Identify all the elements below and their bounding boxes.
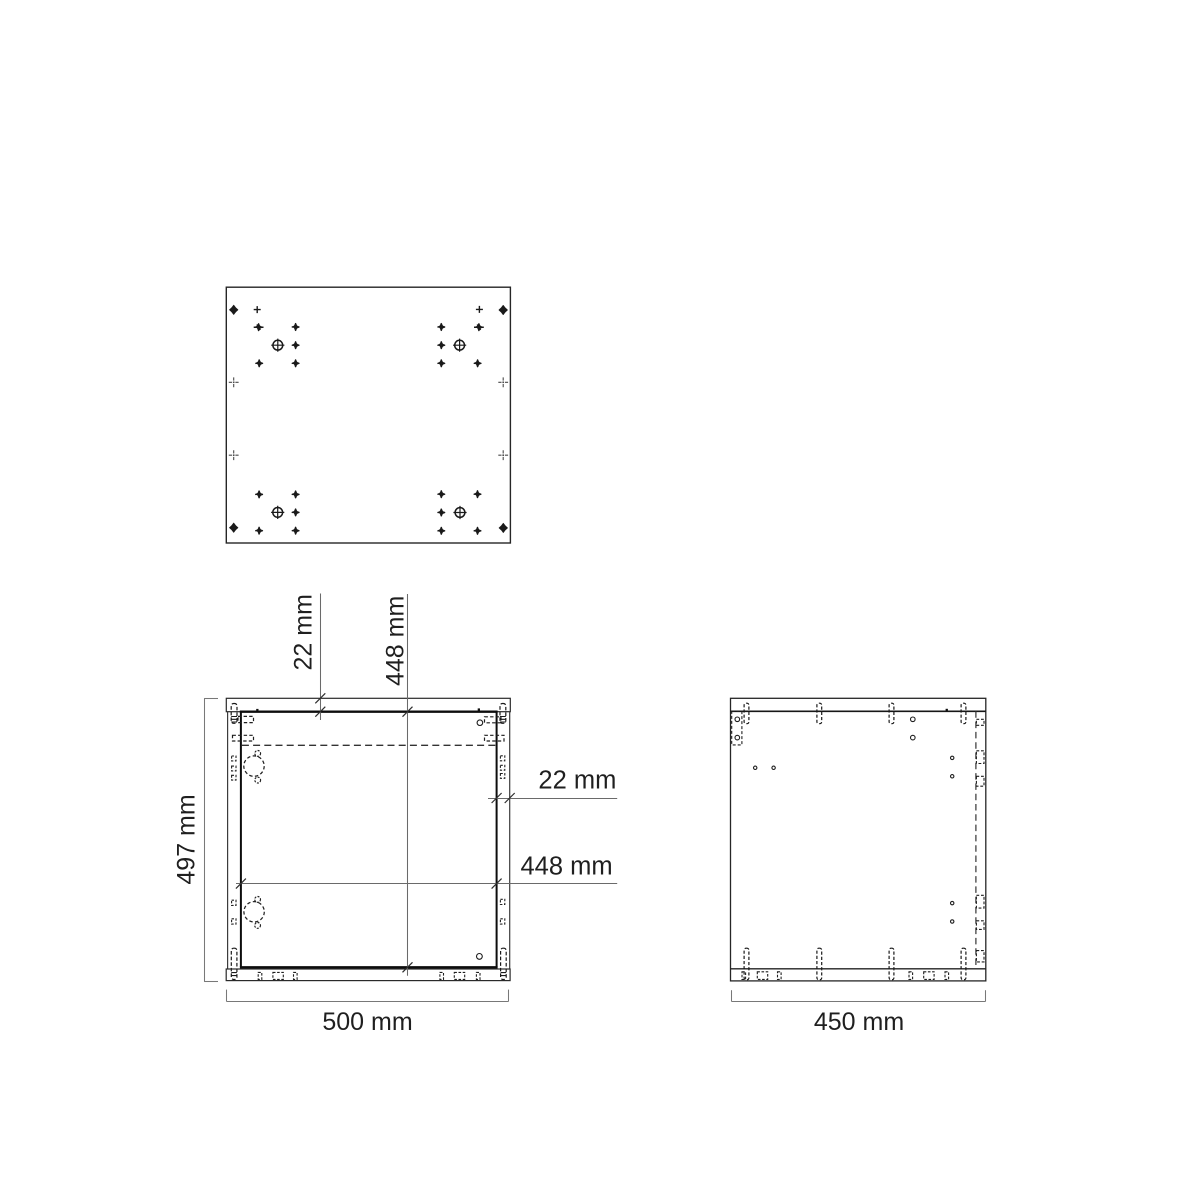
svg-text:22 mm: 22 mm xyxy=(290,594,318,670)
svg-text:450 mm: 450 mm xyxy=(814,1008,904,1036)
svg-text:497 mm: 497 mm xyxy=(173,794,201,884)
svg-text:500 mm: 500 mm xyxy=(322,1008,412,1036)
svg-text:448 mm: 448 mm xyxy=(521,853,613,881)
svg-text:448 mm: 448 mm xyxy=(382,596,410,686)
svg-text:22 mm: 22 mm xyxy=(538,766,616,794)
